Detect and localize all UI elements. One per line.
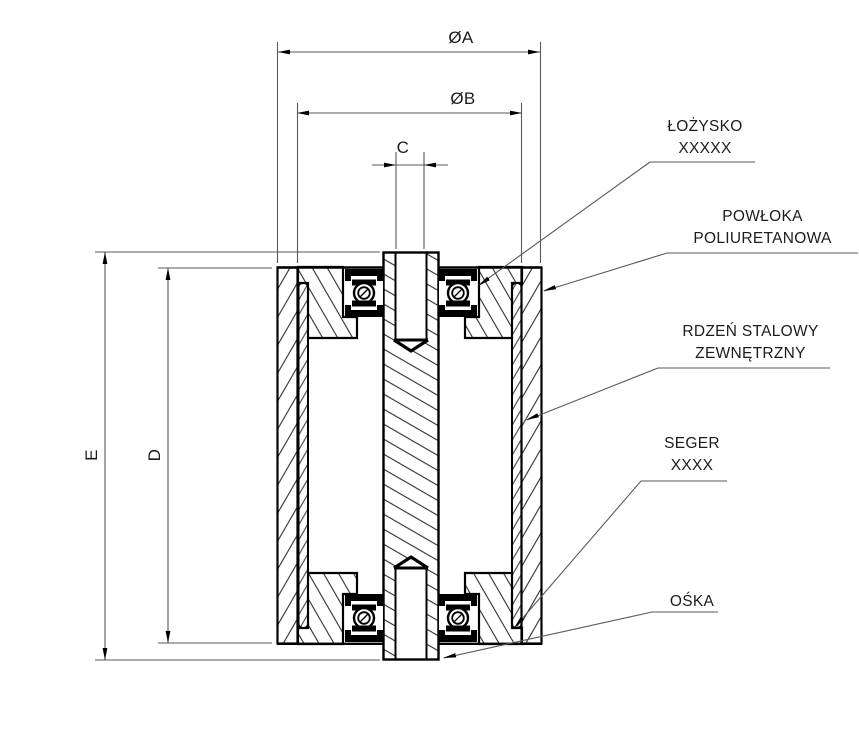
callout-coating-line2: POLIURETANOWA (660, 228, 859, 250)
axle-top-bore (396, 253, 427, 351)
axle (384, 253, 439, 660)
dim-label-axle-length: E (83, 440, 101, 470)
core-tube-left (299, 283, 309, 628)
dim-label-core-diameter: ØB (432, 88, 494, 110)
bearing-top-left (345, 269, 383, 317)
bearing-bottom-left (345, 594, 383, 642)
callout-coating-line1: POWŁOKA (660, 206, 859, 228)
bearing-bottom-right (439, 594, 477, 642)
core-tube-right (512, 283, 522, 628)
leader-core (527, 368, 658, 420)
callout-core: RDZEŃ STALOWY ZEWNĘTRZNY (648, 321, 853, 365)
callout-circlip-line2: XXXX (612, 455, 772, 477)
coating-right (522, 268, 542, 644)
callout-circlip: SEGER XXXX (612, 433, 772, 477)
bearing-top-right (439, 269, 477, 317)
coating-left (278, 268, 298, 644)
dimension-lines (95, 42, 541, 660)
dim-label-core-height: D (146, 440, 164, 470)
axle-bottom-bore (396, 558, 427, 660)
drawing-canvas (0, 0, 859, 740)
callout-core-line2: ZEWNĘTRZNY (648, 343, 853, 365)
callout-core-line1: RDZEŃ STALOWY (648, 321, 853, 343)
dim-label-outer-diameter: ØA (430, 27, 492, 49)
callout-axle-line1: OŚKA (642, 591, 742, 613)
callout-axle: OŚKA (642, 591, 742, 613)
callout-coating: POWŁOKA POLIURETANOWA (660, 206, 859, 250)
leader-coating (544, 253, 667, 291)
callout-circlip-line1: SEGER (612, 433, 772, 455)
callout-bearing-line2: XXXXX (625, 138, 785, 160)
technical-drawing-roller-cross-section: ØA ØB C E D ŁOŻYSKO XXXXX POWŁOKA POLIUR… (0, 0, 859, 740)
callout-bearing: ŁOŻYSKO XXXXX (625, 116, 785, 160)
callout-bearing-line1: ŁOŻYSKO (625, 116, 785, 138)
dim-label-bore: C (383, 137, 423, 159)
